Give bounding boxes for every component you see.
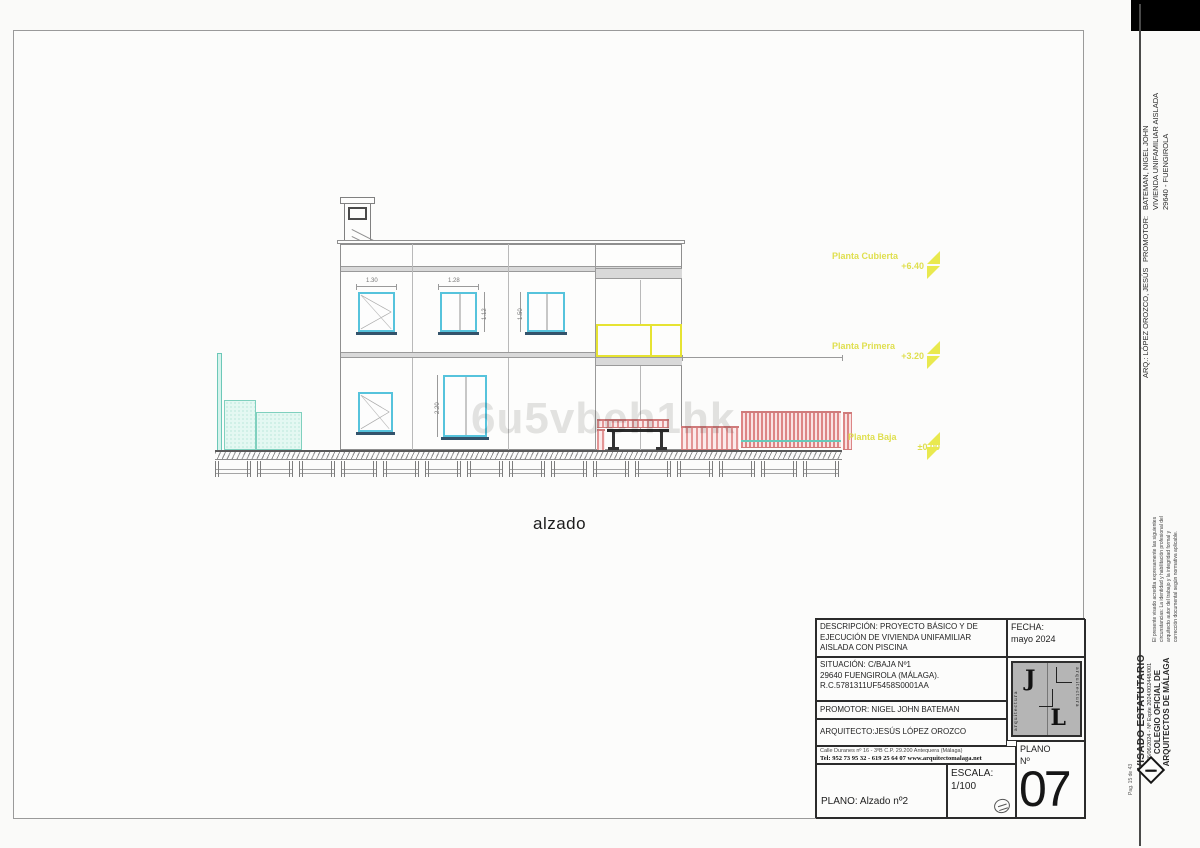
level-value: ±0.00 (848, 442, 968, 452)
level-marker-ground: Planta Baja ±0.00 (848, 432, 968, 452)
escala-label: ESCALA: (951, 767, 1012, 780)
sidebar-promotor-block: PROMOTOR:BATEMAN, NIGEL JOHN VIVIENDA UN… (1141, 122, 1171, 262)
highlighted-stair-box (596, 324, 682, 357)
sidebar-promotor-line: VIVIENDA UNIFAMILIAR AISLADA (1151, 122, 1161, 210)
architect-logo-cell: arquitectura arquitectura J L (1007, 657, 1086, 741)
sidebar-promotor-line: PROMOTOR:BATEMAN, NIGEL JOHN (1141, 122, 1151, 262)
door-mullion (465, 377, 467, 435)
dim-value: 1.12 (482, 308, 488, 320)
tower-band-top (596, 268, 682, 279)
plano-num-label: PLANO (1020, 744, 1082, 756)
logo-step-line (1056, 667, 1072, 683)
situacion-line: SITUACIÓN: C/BAJA Nº1 (820, 660, 1003, 671)
situacion-line: 29640 FUENGIROLA (MÁLAGA). (820, 671, 1003, 682)
sidebar-promotor-name: BATEMAN, NIGEL JOHN (1141, 125, 1150, 210)
fence-teal-rail (741, 440, 841, 442)
watermark-text: 6u5vbeh1hk (471, 394, 735, 444)
window-upper-1 (358, 292, 395, 332)
situacion-line: R.C.5781311UF5458S0001AA (820, 681, 1003, 692)
colegio-line: ARQUITECTOS DE MÁLAGA (1162, 636, 1171, 788)
descripcion-line: AISLADA CON PISCINA (820, 643, 1003, 654)
window-opening-lines (360, 294, 393, 330)
window-upper-3 (527, 292, 565, 332)
descripcion-line: DESCRIPCIÓN: PROYECTO BÁSICO Y DE (820, 622, 1003, 633)
garden-step-2 (256, 412, 302, 450)
window-upper-2 (440, 292, 477, 332)
level-name: Planta Baja (848, 432, 968, 442)
window-sill (356, 332, 397, 335)
tower-band-low (596, 357, 682, 366)
plano-name: PLANO: Alzado nº2 (821, 795, 908, 808)
logo-side-text: arquitectura (1014, 667, 1020, 731)
plano-number-cell: PLANO Nº 07 (1016, 741, 1086, 819)
dim-line (438, 286, 479, 287)
level-flag-icon (927, 251, 940, 264)
mid-slab-band (341, 352, 595, 358)
level-flag-icon (927, 447, 940, 460)
plano-name-cell: PLANO: Alzado nº2 (816, 764, 947, 819)
chimney-cap (340, 197, 375, 204)
situacion-cell: SITUACIÓN: C/BAJA Nº1 29640 FUENGIROLA (… (816, 657, 1007, 701)
window-sill (525, 332, 567, 335)
dim-value: 1.50 (518, 308, 524, 320)
level-flag-icon (927, 432, 940, 445)
dim-value: 1.28 (448, 278, 460, 284)
descripcion-line: EJECUCIÓN DE VIVIENDA UNIFAMILIAR (820, 633, 1003, 644)
note-line: corrección documental según normativa ap… (1173, 480, 1180, 642)
descripcion-cell: DESCRIPCIÓN: PROYECTO BÁSICO Y DE EJECUC… (816, 619, 1007, 657)
promotor-cell: PROMOTOR: NIGEL JOHN BATEMAN (816, 701, 1007, 719)
ground-hatch (215, 452, 842, 460)
arquitecto-text: ARQUITECTO:JESÚS LÓPEZ OROZCO (820, 727, 966, 738)
fecha-value: mayo 2024 (1011, 634, 1082, 646)
corner-black-tab (1131, 0, 1200, 31)
facade-joint (412, 244, 413, 450)
dim-value: 2.20 (435, 402, 441, 414)
sidebar-page-note: Pag. 15 de 43 (1128, 753, 1136, 795)
level-flag-icon (927, 266, 940, 279)
logo-letter-j: J (1025, 665, 1035, 694)
note-line: El presente visado acredita expresamente… (1152, 480, 1159, 642)
arquitecto-cell: ARQUITECTO:JESÚS LÓPEZ OROZCO (816, 719, 1007, 746)
note-line: arquitecto autor del trabajo y la integr… (1166, 480, 1173, 642)
dim-value: 1.30 (366, 278, 378, 284)
sidebar-promotor-line: 29640 - FUENGIROLA (1161, 122, 1171, 210)
note-line: circunstancias: La identidad y habilitac… (1159, 480, 1166, 642)
address-line-2: Tel: 952 73 95 32 - 619 25 64 07 www.arq… (820, 755, 1012, 764)
level-flag-icon (927, 356, 940, 369)
chimney-flue (348, 207, 367, 220)
window-sill (438, 332, 479, 335)
fecha-label: FECHA: (1011, 622, 1082, 634)
garden-step-1 (224, 400, 256, 450)
logo-side-text: arquitectura (1073, 667, 1079, 731)
window-mullion (546, 294, 548, 330)
promotor-text: PROMOTOR: NIGEL JOHN BATEMAN (820, 705, 959, 716)
address-line-1: Calle Duranes nº 16 - 3ºB C.P. 29.200 An… (820, 748, 1012, 755)
highlighted-stair-divider (650, 326, 652, 355)
dim-line (356, 286, 397, 287)
level-flag-icon (927, 341, 940, 354)
escala-value: 1/100 (951, 780, 1012, 793)
plano-number: 07 (1019, 756, 1069, 822)
plan-sheet-page: 1.30 1.28 1.12 1.50 2.20 (0, 0, 1200, 848)
title-block: DESCRIPCIÓN: PROYECTO BÁSICO Y DE EJECUC… (815, 618, 1085, 818)
jl-logo: arquitectura arquitectura J L (1011, 661, 1082, 737)
window-sill (356, 432, 395, 435)
drawing-caption: alzado (533, 514, 586, 534)
terrace-dim-line (682, 357, 843, 358)
retaining-wall-edge (217, 353, 222, 451)
sidebar-visado-note: El presente visado acredita expresamente… (1152, 480, 1180, 642)
sidebar-arquitecto: ARQ.: LÓPEZ OROZCO, JESÚS (1141, 278, 1153, 378)
logo-letter-l: L (1051, 704, 1066, 733)
address-cell: Calle Duranes nº 16 - 3ºB C.P. 29.200 An… (816, 746, 1016, 764)
fence-segment-2 (741, 411, 841, 448)
foundation-blocks (215, 461, 842, 477)
sidebar-promotor-label: PROMOTOR: (1141, 210, 1151, 262)
stamp-icon (992, 797, 1012, 815)
window-lower-1 (358, 392, 393, 432)
window-opening-lines (360, 394, 391, 430)
escala-cell: ESCALA: 1/100 (947, 764, 1016, 819)
fecha-cell: FECHA: mayo 2024 (1007, 619, 1086, 657)
window-mullion (459, 294, 461, 330)
